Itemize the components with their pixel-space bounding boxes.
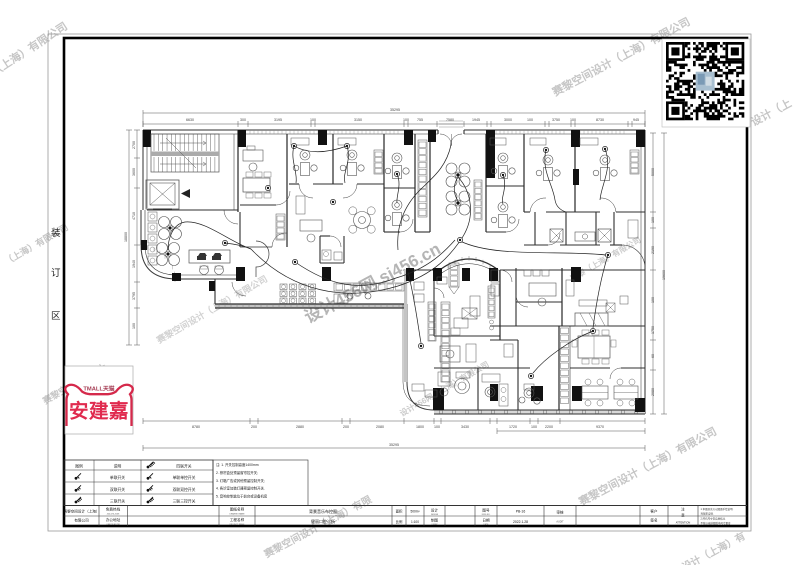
svg-text:2080: 2080 (376, 425, 384, 429)
svg-text:健丽口腔诊所: 健丽口腔诊所 (311, 518, 335, 524)
svg-text:图号: 图号 (482, 508, 490, 513)
svg-text:注: 注 (681, 507, 685, 512)
svg-text:200: 200 (251, 425, 257, 429)
svg-text:3600: 3600 (132, 168, 136, 176)
svg-text:制图: 制图 (431, 518, 439, 523)
svg-text:6630: 6630 (186, 118, 194, 122)
svg-text:2. 棕帘盒处预留窗帘控开关;: 2. 棕帘盒处预留窗帘控开关; (216, 470, 258, 475)
svg-text:双联双控开关: 双联双控开关 (173, 487, 196, 492)
svg-text:300: 300 (240, 118, 246, 122)
svg-text:日期: 日期 (482, 518, 490, 523)
svg-text:100: 100 (651, 297, 655, 303)
svg-text:755: 755 (417, 118, 423, 122)
svg-text:审核: 审核 (556, 510, 564, 515)
svg-text:ATTENTION: ATTENTION (676, 521, 691, 525)
svg-text:100: 100 (527, 118, 533, 122)
svg-text:100: 100 (651, 217, 655, 223)
svg-text:100: 100 (403, 118, 409, 122)
svg-text:100: 100 (310, 118, 316, 122)
svg-text:1:100: 1:100 (411, 520, 419, 524)
svg-text:DRAW: DRAW (432, 523, 438, 526)
svg-text:（上海）有限公司: （上海）有限公司 (0, 19, 70, 79)
svg-text:3750: 3750 (552, 118, 560, 122)
svg-text:3000: 3000 (504, 118, 512, 122)
svg-text:单联单控开关: 单联单控开关 (173, 475, 196, 480)
svg-text:1940: 1940 (132, 260, 136, 268)
svg-text:2200: 2200 (545, 425, 553, 429)
svg-text:三联三控开关: 三联三控开关 (173, 499, 196, 504)
svg-text:OFFICE ADDR: OFFICE ADDR (106, 523, 120, 526)
svg-text:60: 60 (651, 354, 655, 358)
svg-text:说明: 说明 (114, 463, 122, 468)
svg-text:8780: 8780 (192, 425, 200, 429)
svg-text:AUDIT: AUDIT (556, 521, 564, 524)
svg-text:三联开关: 三联开关 (110, 499, 125, 504)
svg-text:100: 100 (132, 323, 136, 329)
svg-text:不能以缩放图纸中尺寸量度.: 不能以缩放图纸中尺寸量度. (701, 521, 732, 525)
svg-text:图纸名称: 图纸名称 (230, 507, 245, 512)
svg-text:1945: 1945 (472, 118, 480, 122)
svg-text:3195: 3195 (274, 118, 282, 122)
svg-text:100: 100 (531, 425, 537, 429)
svg-text:办公地址: 办公地址 (106, 517, 121, 522)
svg-text:四联开关: 四联开关 (176, 463, 191, 468)
svg-text:订: 订 (51, 268, 61, 279)
svg-text:100: 100 (570, 118, 576, 122)
svg-text:3430: 3430 (461, 425, 469, 429)
svg-text:界限无定则.: 界限无定则. (701, 512, 715, 516)
svg-text:945: 945 (633, 118, 639, 122)
svg-text:图例: 图例 (75, 463, 83, 468)
svg-text:赛黎空间设计（上海）: 赛黎空间设计（上海） (64, 509, 100, 514)
svg-text:7580: 7580 (446, 118, 454, 122)
svg-text:设计: 设计 (431, 508, 439, 513)
svg-text:装: 装 (51, 227, 61, 239)
svg-text:比例: 比例 (396, 519, 403, 524)
svg-text:2080: 2080 (651, 388, 655, 396)
svg-text:面积: 面积 (396, 509, 403, 514)
svg-text:客户: 客户 (650, 509, 658, 514)
svg-text:19600: 19600 (662, 270, 666, 280)
svg-text:2880: 2880 (296, 425, 304, 429)
svg-text:4. 各诊室加装灯器预留控制开关.: 4. 各诊室加装灯器预留控制开关. (216, 486, 265, 491)
svg-text:PB-16: PB-16 (516, 510, 526, 514)
svg-text:100: 100 (434, 425, 440, 429)
svg-text:单联开关: 单联开关 (110, 475, 125, 480)
svg-text:签名: 签名 (650, 518, 658, 523)
svg-text:背景音乐布控图: 背景音乐布控图 (309, 508, 337, 514)
svg-text:1 本图其含义以图面手绘说明.: 1 本图其含义以图面手绘说明. (701, 507, 734, 511)
svg-text:意: 意 (681, 513, 685, 518)
svg-text:工程名称: 工程名称 (230, 517, 245, 522)
svg-text:3. 灯箱广告或其他预留控制开关;: 3. 灯箱广告或其他预留控制开关; (216, 478, 265, 483)
svg-text:8730: 8730 (596, 118, 604, 122)
svg-text:4710: 4710 (132, 212, 136, 220)
svg-text:400-676-3168: 400-676-3168 (107, 514, 120, 516)
svg-text:赛黎空间设计（上海）有限公司: 赛黎空间设计（上海）有限公司 (575, 424, 718, 509)
svg-text:TMALL天猫: TMALL天猫 (83, 385, 114, 393)
svg-text:3150: 3150 (354, 118, 362, 122)
svg-text:35295: 35295 (389, 443, 399, 447)
svg-text:1720: 1720 (509, 425, 517, 429)
svg-text:1800: 1800 (416, 425, 424, 429)
svg-text:18800: 18800 (124, 232, 128, 242)
svg-text:设计（上: 设计（上 (748, 96, 793, 129)
svg-text:1750: 1750 (651, 326, 655, 334)
svg-text:双联开关: 双联开关 (110, 487, 125, 492)
svg-text:DESIGN: DESIGN (431, 514, 439, 516)
svg-text:免费热线: 免费热线 (106, 507, 121, 512)
svg-text:DATE: DATE (484, 523, 490, 526)
svg-text:有限公司: 有限公司 (74, 518, 89, 523)
svg-text:安建嘉: 安建嘉 (69, 400, 129, 423)
svg-text:3795: 3795 (132, 292, 136, 300)
svg-text:9370: 9370 (596, 425, 604, 429)
svg-text:5. 音响控制盒位于前台或设备机房: 5. 音响控制盒位于前台或设备机房 (216, 494, 268, 499)
svg-text:DWG NO.: DWG NO. (482, 514, 491, 516)
svg-text:设计（上海）有: 设计（上海）有 (680, 529, 748, 565)
svg-text:200: 200 (343, 425, 349, 429)
svg-text:注: 1. 开关控制高度1400mm: 注: 1. 开关控制高度1400mm (216, 462, 259, 467)
svg-text:35295: 35295 (390, 108, 400, 112)
svg-text:2190: 2190 (651, 246, 655, 254)
svg-text:5000: 5000 (651, 168, 655, 176)
svg-text:PROJECT NAME: PROJECT NAME (230, 523, 246, 526)
svg-text:区: 区 (51, 311, 61, 322)
svg-text:500m²: 500m² (410, 510, 419, 514)
svg-text:DRAWING NAME: DRAWING NAME (229, 513, 245, 516)
svg-text:设计456网.sj456.cn: 设计456网.sj456.cn (301, 238, 444, 327)
svg-text:2022.1.28: 2022.1.28 (513, 520, 528, 524)
svg-text:2700: 2700 (132, 141, 136, 149)
svg-text:2 所有尺寸需实地核对.: 2 所有尺寸需实地核对. (701, 516, 727, 520)
